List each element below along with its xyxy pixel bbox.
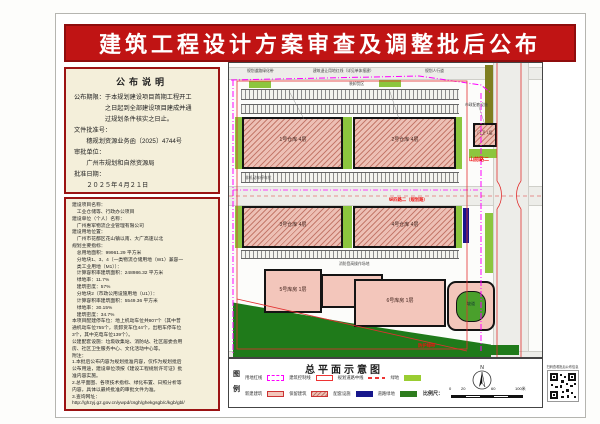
- notice-line: 之日起到全部建设项目建成并通: [74, 103, 210, 114]
- qr-code: [547, 370, 579, 402]
- legend-item-label: 道路绿地: [378, 391, 395, 397]
- qr-block: 扫码查看批后公布信息: [546, 366, 579, 408]
- detail-line: 分地块2（市政公用设施用地（U1））：: [72, 292, 212, 299]
- building-warehouse-1: [242, 117, 343, 169]
- plan-annotation: 建筑退让用地红线（详见单体报建）: [313, 69, 374, 73]
- building-warehouse-2: [353, 117, 456, 169]
- legend-swatch-control-line: [316, 375, 333, 381]
- detail-line: 准内容实施。: [72, 374, 212, 381]
- svg-text:N: N: [480, 365, 484, 371]
- detail-line: 建设单位（个人）名称：: [72, 217, 212, 224]
- notice-line: 广州市规划和自然资源局: [74, 158, 210, 169]
- notice-panel: 公布说明 公布期限：于本规划建设项目首期工程开工 之日起到全部建设项目建成并通 …: [64, 67, 220, 194]
- road-label: 纵四路二（规划路）: [389, 197, 428, 203]
- scale-tick: 0: [449, 386, 451, 391]
- legend-swatch-red-line: [267, 375, 284, 381]
- detail-line: 分地块1、3、4（一类物流仓储用地（W1）兼容一: [72, 258, 212, 265]
- parking-band: [241, 89, 459, 100]
- legend-panel: 图 例 总平面示意图 用地红线 建筑控制线 规划道路中线 绿地 新建建筑 保留建…: [228, 358, 543, 408]
- legend-item-label: 用地红线: [245, 375, 262, 381]
- detail-line: 建筑密度：57%: [72, 285, 212, 292]
- details-panel: 建设项目名称： 工业仓储等、行政办公项目建设单位（个人）名称： 广州惠军物流企业…: [64, 197, 220, 411]
- legend-col-char: 图: [233, 367, 240, 382]
- green-strip: [235, 206, 242, 248]
- parking-band: [241, 250, 459, 259]
- green-strip: [249, 81, 271, 88]
- detail-line: 2.总平面图、各项技术指标、绿化布置、日照分析等: [72, 381, 212, 388]
- detail-line: 绿地率：30.15%: [72, 306, 212, 313]
- green-buffer: [459, 345, 519, 355]
- green-strip: [456, 117, 462, 169]
- detail-line: 3个，其中充电车位139个）。: [72, 333, 212, 340]
- page-title: 建筑工程设计方案审查及调整批后公布: [99, 27, 541, 59]
- legend-swatch-green: [404, 375, 421, 381]
- building-label: 4号仓库 4层: [381, 222, 429, 228]
- green-strip: [485, 213, 493, 273]
- plan-annotation: 消防登高操作场地: [339, 262, 369, 266]
- detail-line: 计算容积率建筑面积：5549.36 平方米: [72, 299, 212, 306]
- building-label: 3号仓库 4层: [269, 222, 317, 228]
- legend-swatch-road-green: [400, 391, 417, 397]
- green-strip: [343, 117, 352, 169]
- building-label: 坡道: [457, 301, 485, 307]
- green-strip: [235, 117, 242, 169]
- building-label: 6号库房 1层: [375, 298, 425, 304]
- building-label: 2号仓库 4层: [381, 137, 429, 143]
- notice-line: ２０２５年４月２１日: [74, 180, 210, 191]
- detail-line: 内容，具体以最终批准的审批文件为准。: [72, 388, 212, 395]
- building-label: 5号库房 1层: [269, 287, 317, 293]
- detail-line: 工业仓储等、行政办公项目: [72, 210, 212, 217]
- road-right: [493, 63, 529, 358]
- plan-annotation: 规划人行道: [425, 69, 444, 73]
- legend-title: 总平面示意图: [269, 361, 419, 376]
- legend-swatch-road-centerline: [368, 377, 385, 379]
- detail-lines: 建设项目名称： 工业仓储等、行政办公项目建设单位（个人）名称： 广州惠军物流企业…: [72, 203, 212, 408]
- legend-item-label: 保留建筑: [289, 391, 306, 397]
- plan-annotation: 规划道路绿化带: [247, 69, 274, 73]
- detail-line: 房、社区卫生服务中心、文化活动中心等。: [72, 347, 212, 354]
- scale-label: 比例尺：: [423, 390, 443, 397]
- green-strip: [343, 206, 352, 248]
- notice-line: 文件批准号：: [74, 125, 210, 136]
- legend-swatch-utility: [356, 391, 373, 397]
- legend-column-label: 图 例: [233, 367, 240, 397]
- green-strip: [456, 206, 462, 248]
- notice-line: 过规划条件核实之日止。: [74, 114, 210, 125]
- plan-annotation: 非机动车停车位: [245, 176, 272, 180]
- legend-item-label: 配套设施: [333, 391, 350, 397]
- north-arrow-icon: N: [469, 363, 495, 391]
- title-banner: 建筑工程设计方案审查及调整批后公布: [64, 24, 576, 62]
- notice-line: 批准日期：: [74, 169, 210, 180]
- site-plan: 1号仓库 4层 2号仓库 4层 3号仓库 4层 4号仓库 4层 门卫 1层 5号…: [228, 62, 543, 358]
- detail-line: 建设项目名称：: [72, 203, 212, 210]
- plan-annotation: 市政配套设施: [465, 103, 488, 107]
- road-label: 防护绿带: [418, 343, 435, 349]
- parking-band: [241, 104, 459, 114]
- plan-annotation: 装卸货区: [349, 82, 364, 86]
- scale-bar: [451, 395, 523, 398]
- notice-line: 审批单位：: [74, 147, 210, 158]
- green-strip: [379, 80, 401, 87]
- notice-title: 公布说明: [74, 75, 210, 88]
- legend-item-label: 新建建筑: [245, 391, 262, 397]
- announcement-poster: 建筑工程设计方案审查及调整批后公布 公布说明 公布期限：于本规划建设项目首期工程…: [0, 0, 600, 424]
- detail-line: 公建配套设施：垃圾收集站、消防站、社区居委会用: [72, 340, 212, 347]
- notice-lines: 公布期限：于本规划建设项目首期工程开工 之日起到全部建设项目建成并通 过规划条件…: [74, 92, 210, 191]
- legend-col-char: 例: [233, 382, 240, 397]
- building-label: 门卫 1层: [471, 130, 499, 136]
- detail-line: 通机动车位755个，装卸货车位44个，出租车停车位: [72, 326, 212, 333]
- building-label: 1号仓库 4层: [269, 137, 317, 143]
- scale-tick: 100米: [515, 386, 526, 392]
- legend-item-label: 规划道路中线: [338, 375, 364, 381]
- road-label: 山前路二: [469, 156, 489, 163]
- parking-band: [241, 172, 459, 183]
- scale-tick: 20: [461, 386, 465, 391]
- detail-line: 总用地面积：99961.29 平方米: [72, 251, 212, 258]
- legend-item-label: 建筑控制线: [289, 375, 310, 381]
- notice-line: 公布期限：于本规划建设项目首期工程开工: [74, 92, 210, 103]
- detail-line: 规划主要指标：: [72, 244, 212, 251]
- legend-swatch-new-building: [267, 391, 284, 397]
- detail-line: http://ghzyj.gz.gov.cn/ywpd/csgh/ghekgsg…: [72, 401, 212, 408]
- legend-swatch-retained-building: [311, 391, 328, 397]
- legend-item-label: 绿地: [390, 375, 399, 381]
- utility-block: [463, 208, 469, 243]
- notice-line: 穗规划资源业务函〔2025〕4744号: [74, 136, 210, 147]
